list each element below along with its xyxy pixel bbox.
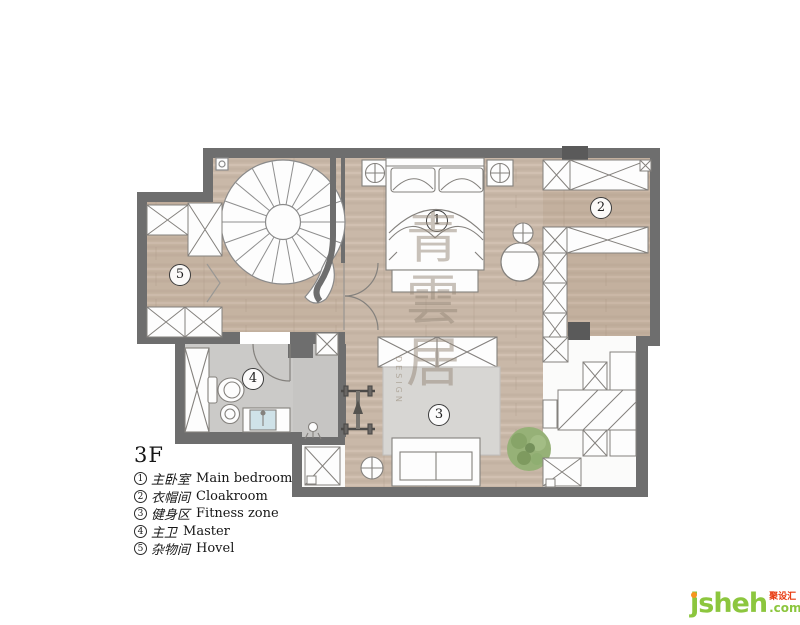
desk-icon (558, 390, 636, 430)
bed-bench-icon (392, 270, 478, 292)
room-label-cloakroom: 2 (590, 197, 612, 219)
logo-brand-text: jsheh (690, 590, 767, 617)
small-box-icon (546, 479, 555, 487)
floor-title: 3F (134, 443, 292, 467)
legend-label-cn: 衣帽间 (151, 487, 190, 506)
legend-item: 4 主卫 Master (134, 523, 292, 541)
room-label-main-bedroom: 1 (426, 210, 448, 232)
legend-label-en: Master (183, 524, 230, 539)
wall-right-lower (636, 344, 648, 497)
legend-item: 2 衣帽间 Cloakroom (134, 488, 292, 506)
ceiling-fixture-icon (216, 158, 228, 170)
nightstand-icon (362, 160, 388, 186)
room-label-hovel: 5 (169, 264, 191, 286)
legend-number-badge: 5 (134, 542, 147, 555)
small-box-icon (307, 476, 316, 484)
floor-lamp-icon (361, 457, 383, 479)
chair-icon (543, 400, 557, 428)
nightstand-icon (487, 160, 513, 186)
floorplan-page: 1 2 3 4 5 青 雲 居 DESIGN 3F 1 主卧室 Main bed… (0, 0, 800, 625)
logo-dot-icon (691, 592, 697, 598)
strip-cabinet (305, 447, 340, 485)
legend-label-cn: 主卧室 (151, 469, 190, 488)
legend-number-badge: 4 (134, 525, 147, 538)
wall-wing-top (137, 192, 213, 202)
wall-wing-left (137, 192, 147, 344)
legend-item: 3 健身区 Fitness zone (134, 505, 292, 523)
legend-number-badge: 1 (134, 472, 147, 485)
room-label-fitness-zone: 3 (428, 404, 450, 426)
watermark-design-text: DESIGN (394, 356, 403, 405)
sofa-icon (392, 438, 480, 486)
legend-item: 1 主卧室 Main bedroom (134, 470, 292, 488)
site-logo: jsheh 聚设汇 .com (690, 590, 800, 617)
legend-label-en: Fitness zone (196, 506, 279, 521)
bath-cabinet-icon (185, 348, 209, 432)
wardrobe-icon (188, 203, 222, 256)
wall-main-left (203, 148, 213, 202)
vanity-sink-icon (243, 408, 290, 432)
legend-label-cn: 杂物间 (151, 539, 190, 558)
logo-tld-text: .com (769, 602, 800, 614)
legend-label-en: Cloakroom (196, 489, 268, 504)
column-mid (568, 322, 590, 340)
legend-label-en: Main bedroom (196, 471, 292, 486)
washer-box-icon (316, 333, 338, 355)
legend-item: 5 杂物间 Hovel (134, 540, 292, 558)
wall-bath-left (175, 340, 185, 432)
legend-number-badge: 2 (134, 490, 147, 503)
wall-top (205, 148, 660, 158)
wall-right-upper (650, 148, 660, 344)
wardrobe-icon (543, 227, 648, 253)
wall-shower-stub (288, 344, 313, 358)
wardrobe-icon (543, 160, 648, 190)
floor-plan-drawing (0, 0, 800, 625)
legend-number-badge: 3 (134, 507, 147, 520)
wardrobe-icon (147, 205, 188, 235)
legend-label-cn: 健身区 (151, 504, 190, 523)
legend-label-cn: 主卫 (151, 522, 177, 541)
round-basin-icon (221, 405, 240, 424)
legend: 3F 1 主卧室 Main bedroom 2 衣帽间 Cloakroom 3 … (134, 443, 292, 558)
legend-label-en: Hovel (196, 541, 234, 556)
wardrobe-column-icon (543, 253, 567, 345)
wall-bottom-left (292, 443, 302, 497)
wall-utility-bottom (302, 437, 345, 445)
wardrobe-icon (147, 307, 222, 337)
wall-bottom (292, 487, 648, 497)
toilet-icon (208, 377, 244, 403)
room-label-master-bath: 4 (242, 368, 264, 390)
